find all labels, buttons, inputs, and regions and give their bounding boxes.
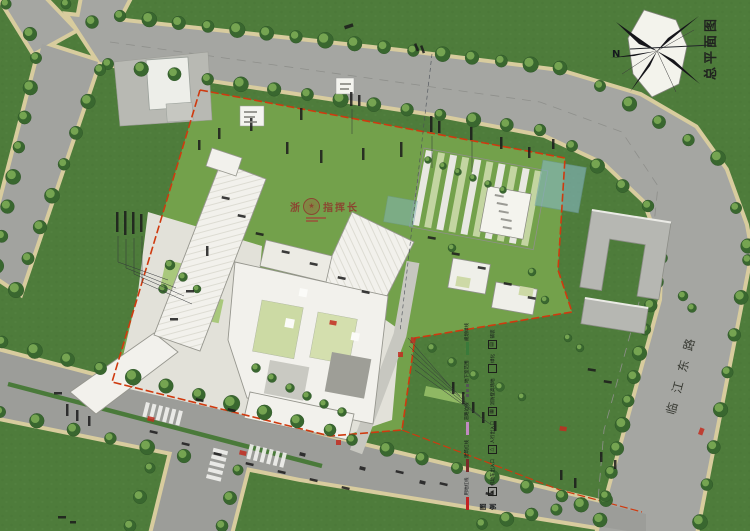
- stamp-text-left: 浙: [290, 199, 300, 214]
- legend-entry: ■绿化: [488, 354, 497, 374]
- legend-entry: ▤铺装: [488, 330, 497, 350]
- pool-area: [535, 160, 586, 213]
- stamp-text-right: 指挥长: [323, 199, 359, 214]
- legend-entry: 用地红线: [464, 478, 470, 511]
- small-building-nw: [146, 57, 191, 110]
- legend-line-items: 用地红线建筑红线道路边线地下室范围规划绿线: [464, 390, 470, 510]
- stamp-subtext-marks: [306, 217, 326, 222]
- legend-title: 图例: [477, 504, 497, 511]
- legend-line-swatch: [466, 385, 469, 398]
- legend-entry: △人行出入口: [488, 421, 497, 454]
- legend-entry: 道路边线: [464, 403, 470, 436]
- legend-symbol: ▦: [488, 407, 497, 416]
- legend-panel: 用地红线建筑红线道路边线地下室范围规划绿线 图例 ▲机动车出入口△人行出入口▦消…: [385, 390, 497, 510]
- legend-symbol: ■: [488, 365, 497, 374]
- star-icon: ★: [308, 203, 314, 210]
- legend-label: 机动车出入口: [490, 459, 496, 486]
- legend-line-swatch: [466, 343, 469, 356]
- master-plan-image: N 总平面图 临江东路 浙 ★ 指挥长 用地红线建筑红线道路边线地下室范围规划绿…: [0, 0, 750, 531]
- legend-entry: 规划绿线: [464, 323, 470, 356]
- legend-line-swatch: [466, 460, 469, 473]
- legend-entry: 建筑红线: [464, 440, 470, 473]
- legend-line-swatch: [466, 422, 469, 435]
- north-label: N: [612, 49, 620, 60]
- legend-line-swatch: [466, 497, 469, 510]
- legend-label: 铺装: [490, 330, 496, 339]
- site-plan-drawing: N: [0, 0, 750, 531]
- legend-label: 建筑红线: [464, 440, 470, 458]
- legend-label: 规划绿线: [464, 323, 470, 341]
- annex-building-1: [448, 258, 491, 294]
- legend-box-items: 图例 ▲机动车出入口△人行出入口▦消防登高场地■绿化▤铺装: [477, 390, 497, 510]
- legend-label: 消防登高场地: [490, 379, 496, 406]
- legend-symbol: ▤: [488, 340, 497, 349]
- legend-entry: ▦消防登高场地: [488, 379, 497, 417]
- legend-label: 人行出入口: [490, 421, 496, 444]
- legend-symbol: ▲: [488, 488, 497, 497]
- approval-stamp: 浙 ★ 指挥长: [290, 198, 359, 215]
- legend-label: 绿化: [490, 354, 496, 363]
- legend-entry: 地下室范围: [464, 361, 470, 398]
- drawing-title: 总平面图: [700, 16, 719, 80]
- legend-entry: ▲机动车出入口: [488, 459, 497, 497]
- legend-label: 地下室范围: [464, 361, 470, 384]
- seal-icon: ★: [303, 198, 320, 215]
- legend-label: 道路边线: [464, 403, 470, 421]
- legend-label: 用地红线: [464, 478, 470, 496]
- legend-symbol: △: [488, 445, 497, 454]
